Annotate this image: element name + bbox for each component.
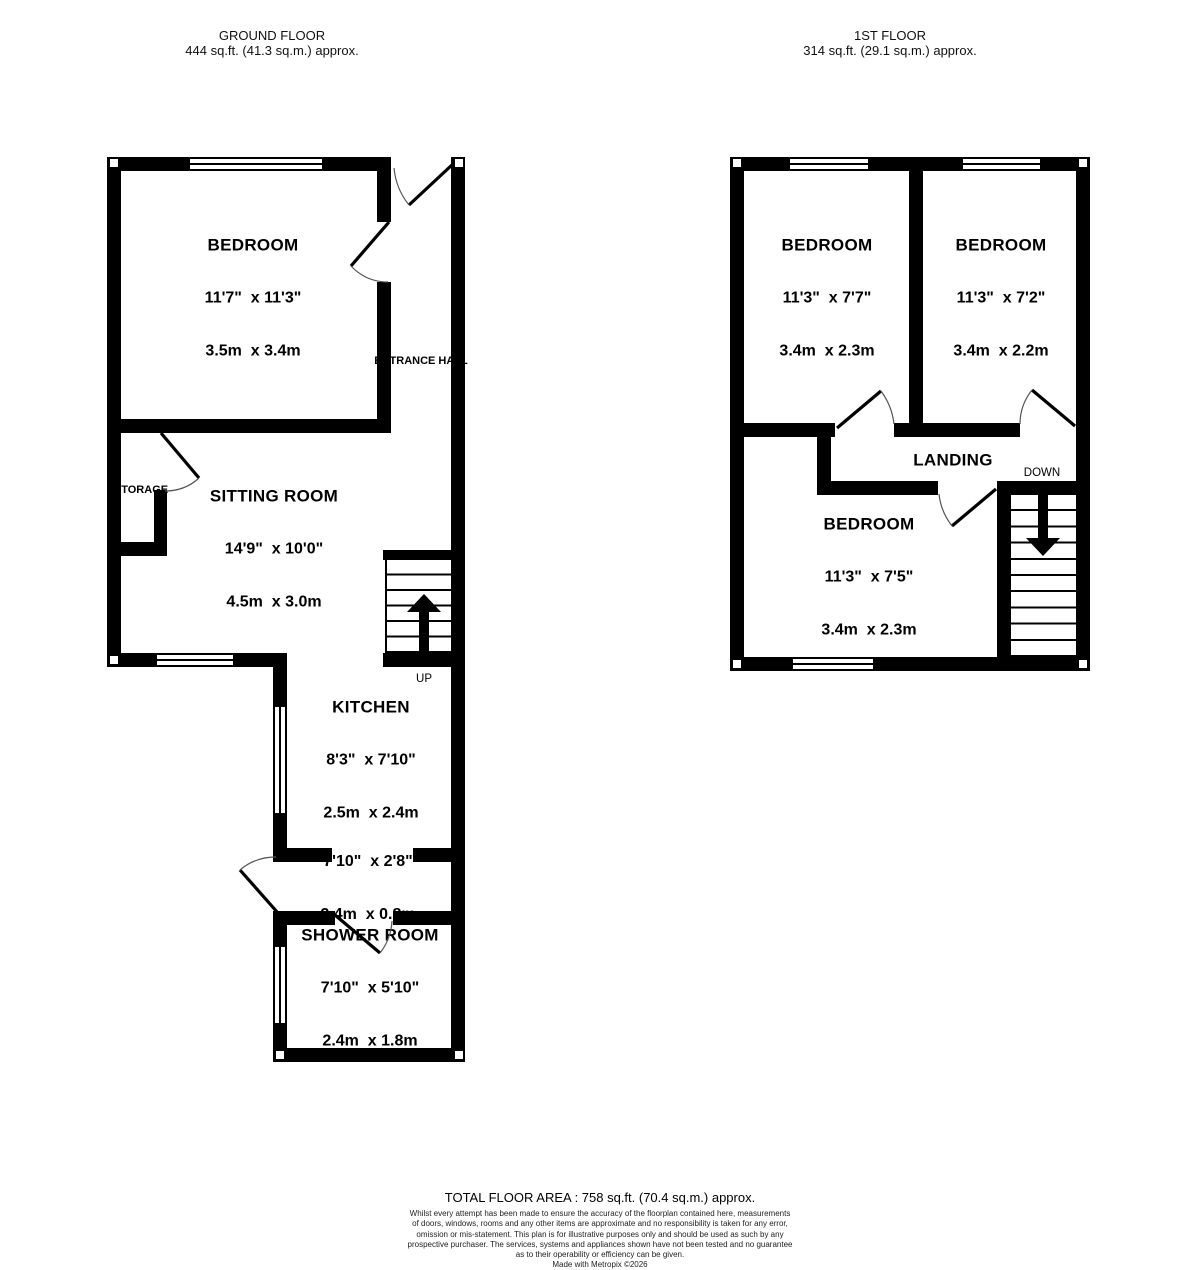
ff-bedroom-left-dims-metric: 3.4m x 2.3m	[779, 343, 874, 360]
ff-stairs-treads	[1011, 495, 1076, 657]
gf-sitting-room-dims-metric: 4.5m x 3.0m	[210, 594, 338, 611]
gf-bedroom-name: BEDROOM	[205, 237, 302, 254]
gf-window-shower	[273, 947, 287, 1023]
gf-kitchen-dims-imperial: 8'3" x 7'10"	[323, 752, 418, 769]
gf-storage-door-icon	[161, 433, 199, 491]
gf-window-kitchen	[273, 707, 287, 813]
disclaimer-line: of doors, windows, rooms and any other i…	[0, 1219, 1200, 1229]
gf-wall-lower-left-a	[273, 653, 287, 707]
first-floor-area: 314 sq.ft. (29.1 sq.m.) approx.	[803, 43, 976, 58]
ff-wall-bedroom3-top-right	[997, 481, 1090, 495]
gf-window-bedroom	[190, 157, 322, 171]
disclaimer-line: as to their operability or efficiency ca…	[0, 1250, 1200, 1260]
ff-window-bedroom-left	[790, 157, 868, 171]
gf-stairs-up-label: UP	[416, 673, 432, 685]
ff-wall-left	[730, 157, 744, 671]
ff-bedroom-left-door-icon	[837, 391, 894, 428]
floorplan-canvas: GROUND FLOOR 444 sq.ft. (41.3 sq.m.) app…	[0, 0, 1200, 1270]
gf-bedroom-dims-imperial: 11'7" x 11'3"	[205, 290, 302, 307]
ff-landing-name: LANDING	[913, 452, 993, 469]
ground-floor-header: GROUND FLOOR 444 sq.ft. (41.3 sq.m.) app…	[185, 28, 358, 58]
gf-wall-right	[451, 157, 465, 1062]
gf-wall-stairs-top	[383, 550, 451, 560]
ff-window-bedroom-right	[963, 157, 1040, 171]
disclaimer: Whilst every attempt has been made to en…	[0, 1209, 1200, 1270]
gf-sitting-room-dims-imperial: 14'9" x 10'0"	[210, 541, 338, 558]
gf-wall-lobby-top-right	[413, 848, 451, 862]
ff-bedroom-left-label: BEDROOM 11'3" x 7'7" 3.4m x 2.3m	[779, 201, 874, 396]
ff-wall-middle-vertical	[909, 171, 923, 437]
first-floor-title: 1ST FLOOR	[803, 28, 976, 43]
gf-wall-bedroom-bottom	[107, 419, 391, 433]
ff-corner-notch-bl	[733, 660, 741, 668]
gf-shower-room-dims-imperial: 7'10" x 5'10"	[301, 980, 438, 997]
ff-stairs-down-label: DOWN	[1024, 467, 1060, 479]
ff-landing-label: LANDING	[913, 416, 993, 505]
gf-stairs-treads	[387, 560, 451, 653]
gf-shower-room-name: SHOWER ROOM	[301, 927, 438, 944]
ff-wall-right	[1076, 157, 1090, 671]
ground-floor-title: GROUND FLOOR	[185, 28, 358, 43]
gf-stairs-left-edge	[385, 553, 387, 653]
gf-wall-left	[107, 157, 121, 667]
ff-bedroom-left-name: BEDROOM	[779, 237, 874, 254]
gf-sitting-room-name: SITTING ROOM	[210, 488, 338, 505]
total-floor-area: TOTAL FLOOR AREA : 758 sq.ft. (70.4 sq.m…	[0, 1190, 1200, 1206]
ff-bedroom-right-label: BEDROOM 11'3" x 7'2" 3.4m x 2.2m	[953, 201, 1048, 396]
ff-bedroom-left-dims-imperial: 11'3" x 7'7"	[779, 290, 874, 307]
metropix-credit: Made with Metropix ©2026	[0, 1260, 1200, 1270]
disclaimer-line: omission or mis-statement. This plan is …	[0, 1230, 1200, 1240]
gf-shower-room-label: SHOWER ROOM 7'10" x 5'10" 2.4m x 1.8m	[301, 891, 438, 1086]
ff-bedroom-bottom-dims-imperial: 11'3" x 7'5"	[821, 569, 916, 586]
gf-corner-notch-tl	[110, 159, 118, 167]
ff-wall-stairs-left	[997, 495, 1011, 657]
ff-bedroom-bottom-label: BEDROOM 11'3" x 7'5" 3.4m x 2.3m	[821, 480, 916, 675]
ground-floor-area: 444 sq.ft. (41.3 sq.m.) approx.	[185, 43, 358, 58]
ff-bedroom-right-dims-imperial: 11'3" x 7'2"	[953, 290, 1048, 307]
gf-bedroom-label: BEDROOM 11'7" x 11'3" 3.5m x 3.4m	[205, 201, 302, 396]
gf-sitting-room-label: SITTING ROOM 14'9" x 10'0" 4.5m x 3.0m	[210, 452, 338, 647]
gf-wall-hall-lower	[377, 282, 391, 433]
ff-corner-notch-tr	[1079, 159, 1087, 167]
gf-front-door-icon	[394, 164, 453, 205]
disclaimer-line: Whilst every attempt has been made to en…	[0, 1209, 1200, 1219]
ff-bedroom-bottom-name: BEDROOM	[821, 516, 916, 533]
first-floor-header: 1ST FLOOR 314 sq.ft. (29.1 sq.m.) approx…	[803, 28, 976, 58]
gf-corner-notch-shower-bl	[276, 1051, 284, 1059]
gf-lobby-dims-imperial: 7'10" x 2'8"	[320, 853, 415, 870]
gf-corner-notch-shower-br	[455, 1051, 463, 1059]
gf-wall-hall-upper	[377, 171, 391, 222]
ff-corner-notch-br	[1079, 660, 1087, 668]
gf-corner-notch-bl	[110, 656, 118, 664]
gf-kitchen-name: KITCHEN	[323, 699, 418, 716]
gf-lobby-door-icon	[240, 857, 278, 913]
gf-bedroom-dims-metric: 3.5m x 3.4m	[205, 343, 302, 360]
gf-shower-room-dims-metric: 2.4m x 1.8m	[301, 1033, 438, 1050]
disclaimer-line: prospective purchaser. The services, sys…	[0, 1240, 1200, 1250]
gf-bedroom-door-icon	[351, 222, 389, 282]
ff-bedroom-right-name: BEDROOM	[953, 237, 1048, 254]
gf-window-sitting	[157, 653, 233, 667]
ff-corner-notch-tl	[733, 159, 741, 167]
gf-wall-storage-horizontal	[121, 542, 167, 556]
ff-bedroom-right-dims-metric: 3.4m x 2.2m	[953, 343, 1048, 360]
ff-bedroom-bottom-dims-metric: 3.4m x 2.3m	[821, 622, 916, 639]
gf-corner-notch-tr	[455, 159, 463, 167]
